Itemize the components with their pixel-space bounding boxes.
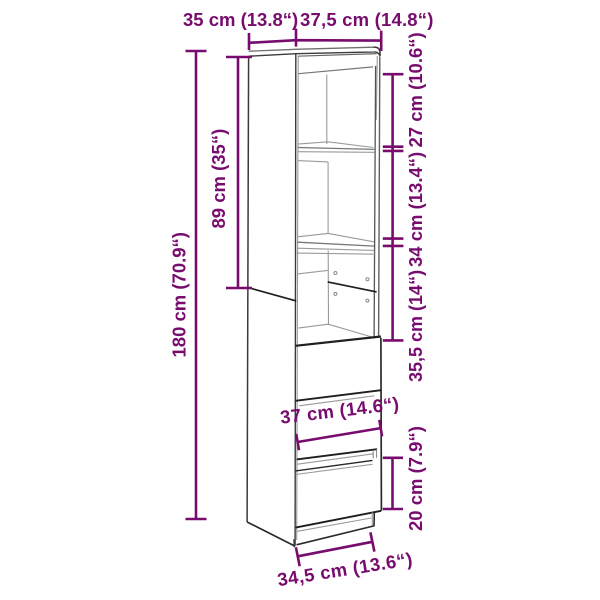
svg-text:180 cm (70.9“): 180 cm (70.9“) [169, 232, 190, 357]
svg-text:35 cm (13.8“): 35 cm (13.8“) [183, 9, 298, 30]
svg-text:35,5 cm (14“): 35,5 cm (14“) [406, 270, 426, 382]
svg-text:27 cm (10.6“): 27 cm (10.6“) [405, 32, 426, 147]
svg-text:34 cm (13.4“): 34 cm (13.4“) [405, 152, 426, 267]
svg-text:37,5 cm (14.8“): 37,5 cm (14.8“) [300, 9, 434, 30]
svg-text:20 cm (7.9“): 20 cm (7.9“) [405, 426, 426, 531]
svg-text:89 cm (35“): 89 cm (35“) [208, 129, 229, 229]
